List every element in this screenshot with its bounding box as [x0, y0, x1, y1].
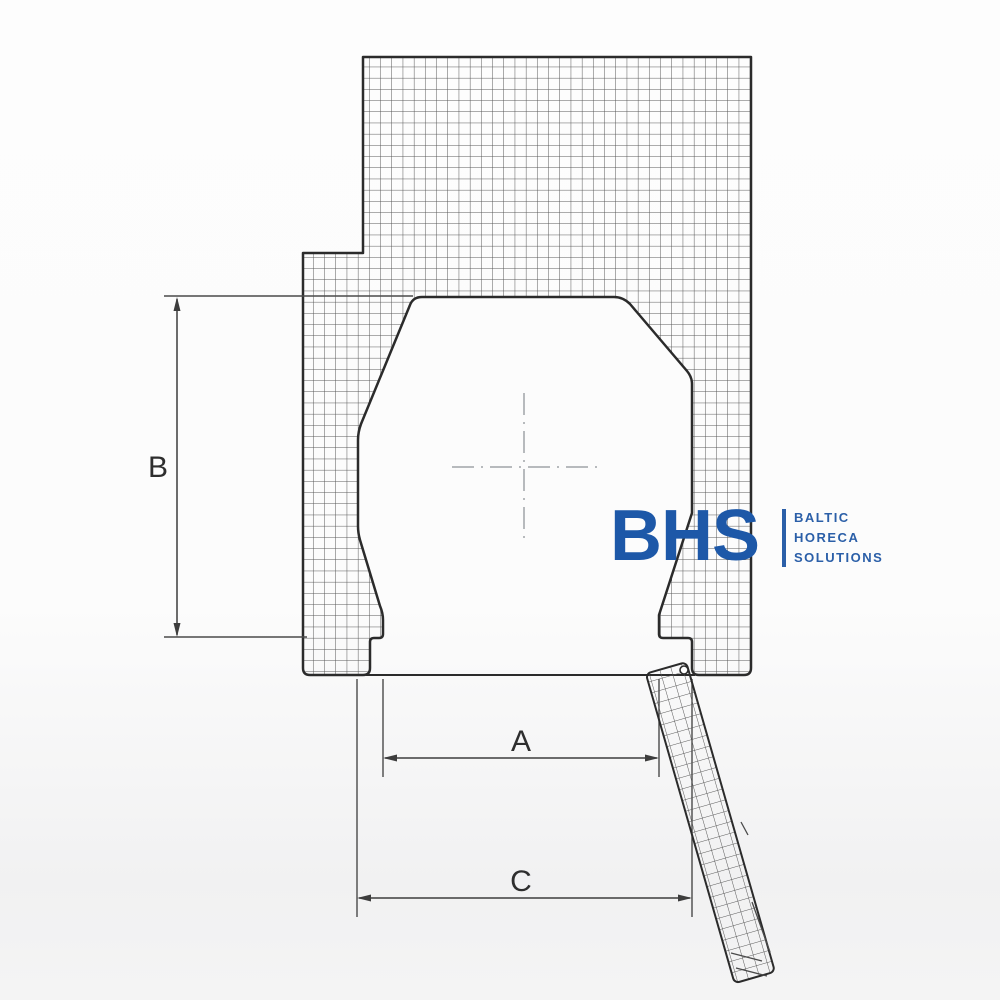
- label-c: C: [510, 865, 532, 898]
- bhs-logo-separator: [782, 509, 786, 567]
- dimension-a: A: [383, 725, 659, 762]
- bhs-logo-acronym: BHS: [610, 505, 759, 567]
- bhs-logo-text-block: BALTIC HORECA SOLUTIONS: [794, 508, 883, 568]
- arrow-a-right: [645, 755, 659, 762]
- arrow-c-left: [357, 895, 371, 902]
- handle-lever: [646, 662, 775, 983]
- arrow-b-down: [174, 623, 181, 637]
- section-drawing: B A C: [0, 0, 1000, 1000]
- handle-edge-step: [741, 822, 748, 835]
- label-b: B: [148, 451, 168, 484]
- arrow-c-right: [678, 895, 692, 902]
- dimension-c: C: [357, 865, 692, 902]
- bhs-logo-line-solutions: SOLUTIONS: [794, 548, 883, 568]
- label-a: A: [511, 725, 531, 758]
- bhs-logo-line-horeca: HORECA: [794, 528, 883, 548]
- bhs-logo: BHS BALTIC HORECA SOLUTIONS: [610, 505, 910, 571]
- extension-lines: [164, 296, 692, 917]
- bhs-logo-line-baltic: BALTIC: [794, 508, 883, 528]
- arrow-a-left: [383, 755, 397, 762]
- arrow-b-up: [174, 297, 181, 311]
- sectioned-body-outline: [303, 57, 751, 675]
- centerline-cross: [452, 393, 598, 543]
- handle-pivot-icon: [680, 666, 688, 674]
- dimension-b: B: [148, 297, 181, 637]
- technical-drawing-frame: B A C BHS: [0, 0, 1000, 1000]
